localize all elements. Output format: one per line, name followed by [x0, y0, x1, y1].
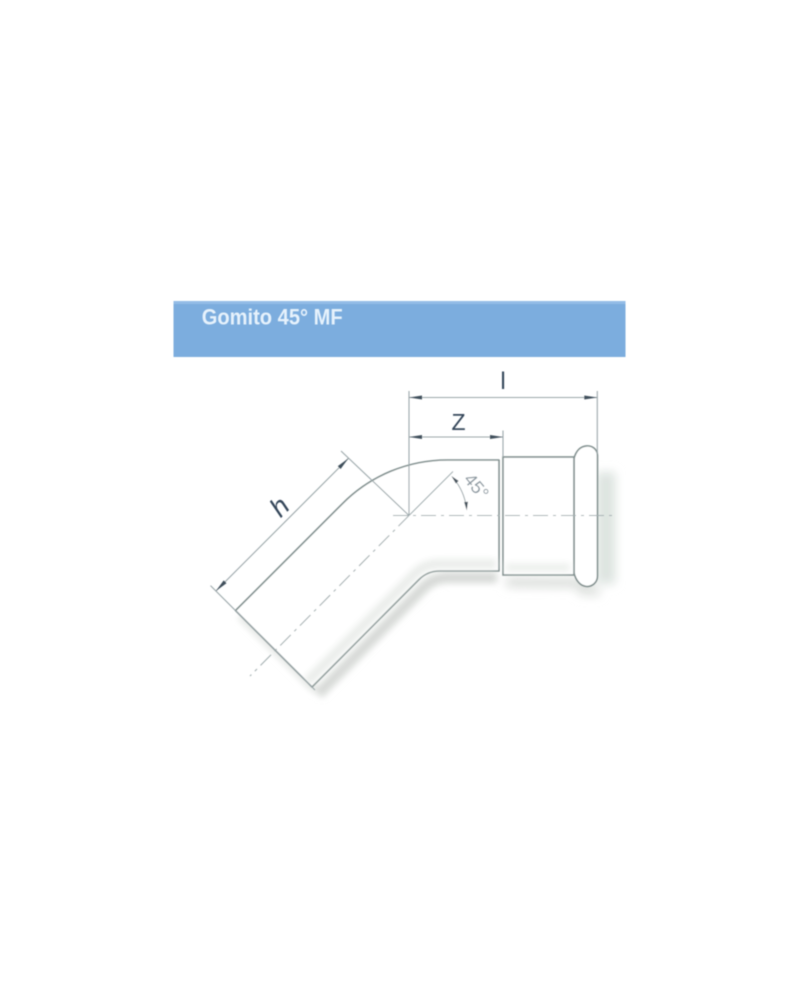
svg-text:Z: Z [451, 409, 465, 435]
svg-text:Gomito 45° MF: Gomito 45° MF [202, 305, 343, 330]
svg-text:l: l [500, 368, 505, 395]
